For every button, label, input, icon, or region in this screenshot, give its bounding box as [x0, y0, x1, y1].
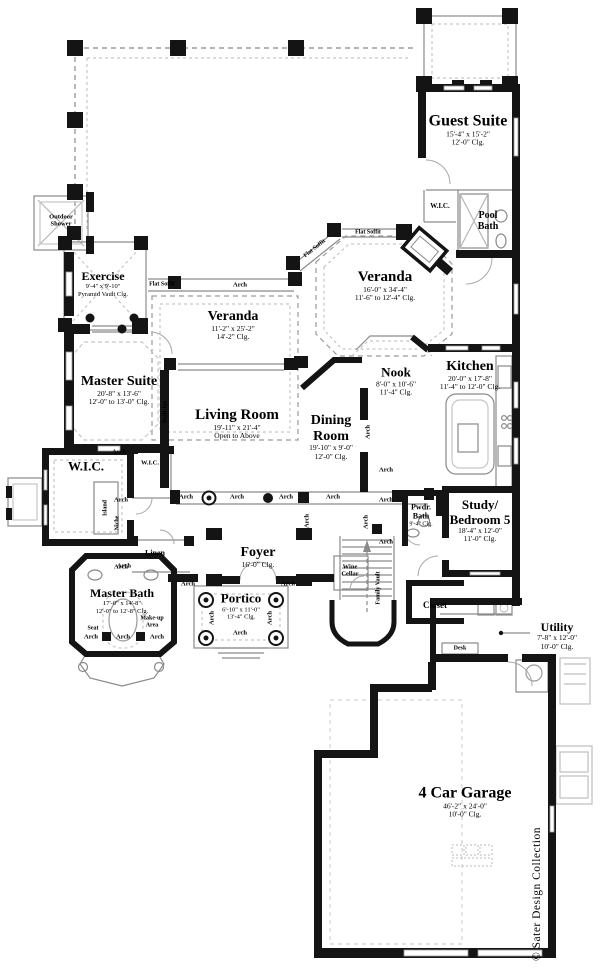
room-label-dining-room: Dining Room 19'-10" x 9'-0" 12'-0" Clg. [295, 413, 367, 461]
island-label: Island [103, 500, 110, 516]
desk-label: Desk [454, 646, 467, 653]
arch-label: Arch [116, 633, 130, 640]
arch-label: Arch [362, 515, 369, 529]
room-label-living-room: Living Room 19'-11" x 21'-4" Open to Abo… [195, 407, 279, 441]
flat-soffit-label: Flat Soffit [355, 230, 381, 237]
room-label-study-bedroom5: Study/ Bedroom 5 18'-4" x 12'-0" 11'-0" … [450, 498, 511, 544]
room-label-nook: Nook 8'-0" x 10'-6" 11'-4" Clg. [376, 365, 416, 396]
arch-label: Arch [281, 580, 295, 587]
room-label-outdoor-shower: Outdoor Shower [42, 214, 80, 229]
arch-label: Arch [233, 281, 247, 288]
flat-soffit-label: Flat Soffit [149, 282, 175, 289]
room-label-linen: Linen [145, 550, 165, 559]
room-label-garage: 4 Car Garage 46'-2" x 24'-0" 10'-0" Clg. [418, 785, 511, 820]
room-label-kitchen: Kitchen 20'-0" x 17'-8" 11'-4" to 12'-0"… [440, 359, 500, 391]
room-label-master-bath: Master Bath 17'-0" x 14'-8" 12'-0" to 12… [90, 587, 154, 615]
designer-credit: © Sater Design Collection [531, 827, 543, 961]
arch-label: Arch [208, 611, 215, 625]
family-vault-label: Family Vault [376, 571, 383, 604]
room-label-portico: Portico 6'-10" x 11'-0" 13'-4" Clg. [221, 591, 261, 620]
arch-label: Arch [379, 466, 393, 473]
seat-label: Seat [88, 626, 99, 633]
room-label-wine-cellar: Wine Cellar [337, 564, 363, 579]
arch-label: Arch [84, 633, 98, 640]
room-label-powder-bath: Pwdr. Bath 9'-4" Clg. [407, 504, 435, 529]
arch-label: Arch [112, 448, 126, 455]
stair-direction-arrow [363, 540, 371, 552]
room-label-master-suite: Master Suite 20'-8" x 13'-6" 12'-0" to 1… [79, 374, 159, 406]
makeup-area-label: Make-up Area [135, 615, 169, 628]
floor-plan-drawing [0, 0, 600, 976]
arch-label: Arch [379, 496, 393, 503]
arch-label: Arch [303, 514, 310, 528]
arch-label: Arch [179, 493, 193, 500]
room-label-veranda-left: Veranda 11'-2" x 25'-2" 14'-2" Clg. [208, 309, 259, 341]
room-label-hall-wic: W.I.C. [141, 459, 159, 466]
room-label-pool-bath: Pool Bath [472, 210, 504, 232]
room-label-veranda-rear: Veranda 16'-0" x 34'-4" 11'-6" to 12'-4"… [355, 269, 415, 303]
arch-label: Arch [279, 493, 293, 500]
built-ins-label: Built-Ins [163, 401, 170, 424]
floor-plan: Guest Suite 15'-4" x 15'-2" 12'-0" Clg. … [0, 0, 600, 976]
arch-label: Arch [114, 496, 128, 503]
niche-label: Niche [115, 516, 122, 531]
arch-label: Arch [117, 562, 131, 569]
arch-label: Arch [364, 425, 371, 439]
arch-label: Arch [233, 629, 247, 636]
arch-label: Arch [181, 580, 195, 587]
room-label-utility: Utility 7'-8" x 12'-0" 10'-0" Clg. [537, 621, 577, 651]
room-label-guest-wic: W.I.C. [430, 203, 449, 211]
room-label-guest-suite: Guest Suite 15'-4" x 15'-2" 12'-0" Clg. [429, 113, 508, 148]
room-label-master-wic: W.I.C. [68, 460, 104, 475]
room-label-closet: Closet [423, 600, 447, 610]
room-label-exercise: Exercise 9'-4" x 9'-10" Pyramid Vault Cl… [65, 270, 141, 298]
arch-label: Arch [230, 493, 244, 500]
arch-label: Arch [326, 493, 340, 500]
arch-label: Arch [379, 538, 393, 545]
arch-label: Arch [266, 611, 273, 625]
room-label-foyer: Foyer 16'-0" Clg. [241, 545, 276, 569]
arch-label: Arch [150, 633, 164, 640]
